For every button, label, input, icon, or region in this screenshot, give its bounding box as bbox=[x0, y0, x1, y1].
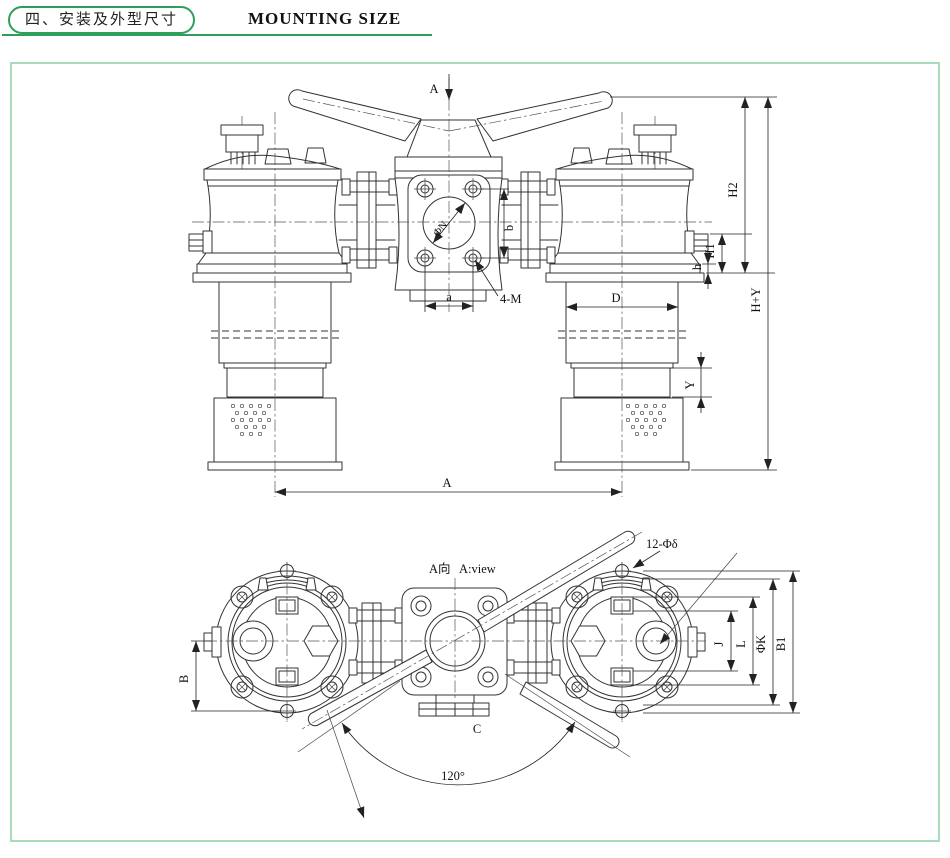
dim-label-a: a bbox=[446, 290, 452, 304]
dim-label-phik: ΦK bbox=[754, 635, 768, 653]
dim-label-b1: B1 bbox=[774, 637, 788, 652]
dim-label-view-a: A bbox=[429, 82, 438, 96]
dim-label-c: C bbox=[473, 722, 481, 736]
section-badge: 四、安装及外型尺寸 bbox=[8, 6, 195, 34]
header-underline bbox=[2, 34, 432, 36]
plan-view-title-zh: A向 bbox=[429, 561, 451, 576]
front-view: A ΦN b a 4-M D Y A bbox=[189, 74, 777, 497]
page: 四、安装及外型尺寸 MOUNTING SIZE bbox=[0, 0, 950, 858]
valve-plan bbox=[402, 578, 507, 716]
dim-label-bb: B bbox=[177, 675, 191, 683]
dim-label-l: L bbox=[734, 640, 748, 648]
page-title: MOUNTING SIZE bbox=[248, 9, 401, 29]
dim-label-12phi: 12-Φδ bbox=[646, 537, 678, 551]
dim-label-h1: H1 bbox=[703, 243, 717, 258]
dim-label-j: J bbox=[712, 641, 726, 646]
technical-drawing: A ΦN b a 4-M D Y A bbox=[0, 0, 950, 858]
dim-label-h2: H2 bbox=[726, 182, 740, 197]
dim-label-b: b bbox=[502, 225, 516, 231]
dim-label-4m: 4-M bbox=[500, 292, 522, 306]
dim-label-hy: H+Y bbox=[749, 287, 763, 312]
handle-ghost-position bbox=[520, 682, 619, 748]
dim-label-y: Y bbox=[683, 380, 697, 389]
left-filter-unit-plan bbox=[204, 562, 403, 722]
front-dimensions: A ΦN b a 4-M D Y A bbox=[275, 74, 777, 492]
dim-label-aa: A bbox=[442, 476, 451, 490]
dim-label-d: D bbox=[611, 291, 620, 305]
dim-label-h: h bbox=[690, 263, 704, 270]
left-filter-unit-front bbox=[189, 112, 397, 497]
right-filter-unit-front bbox=[500, 112, 708, 497]
plan-view: 120° C A向 A:view 12-Φδ B J L bbox=[177, 531, 800, 818]
dim-label-angle: 120° bbox=[441, 769, 465, 783]
plan-view-title-en: A:view bbox=[459, 562, 496, 576]
